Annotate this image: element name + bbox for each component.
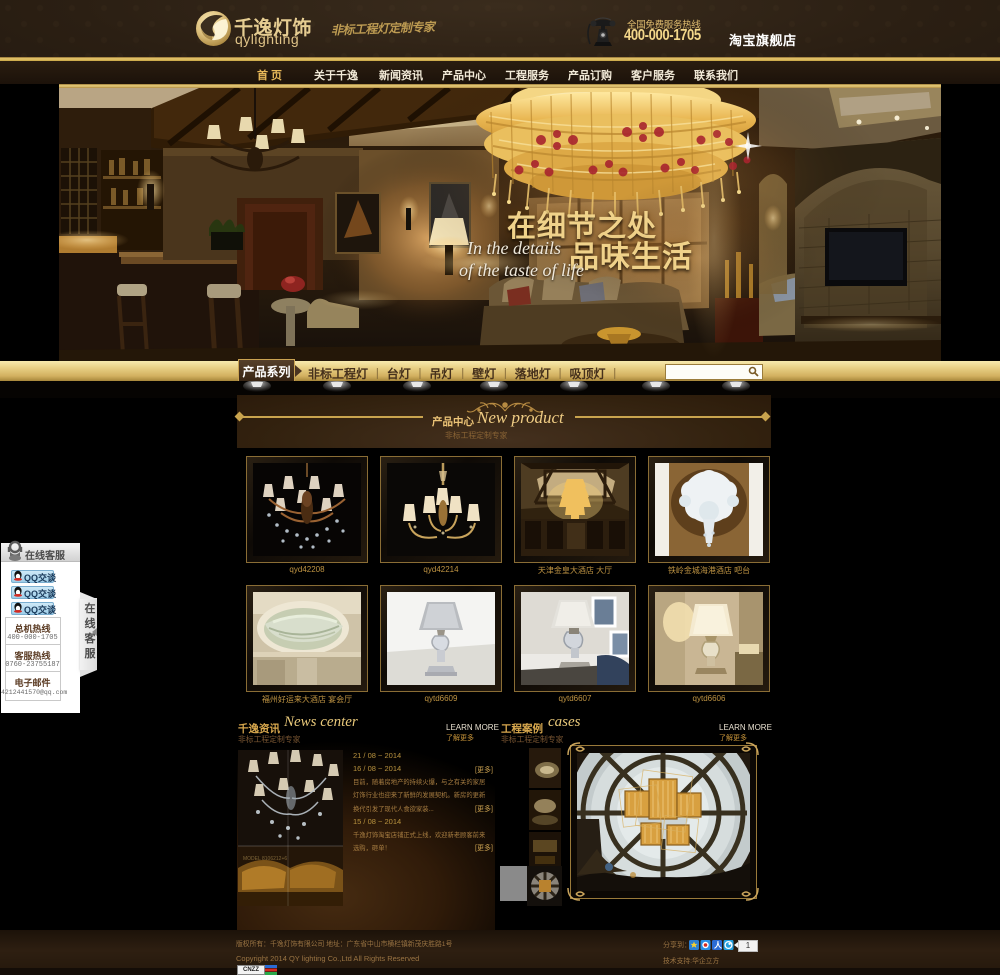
svg-text:人: 人 [714,940,723,950]
svg-text:MODEL 8106212+6: MODEL 8106212+6 [243,856,287,862]
